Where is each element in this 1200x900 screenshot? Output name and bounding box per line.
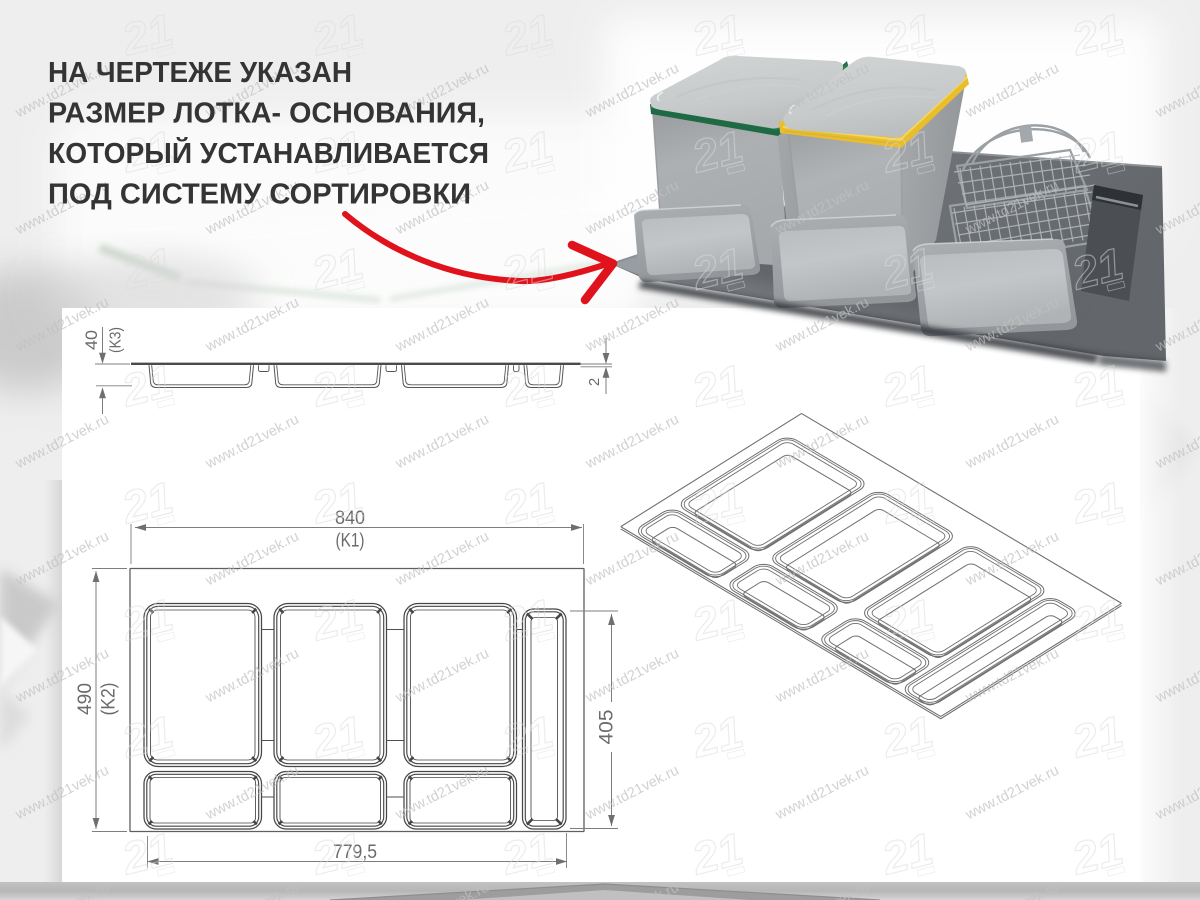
svg-text:РАЗМЕР ЛОТКА- ОСНОВАНИЯ,: РАЗМЕР ЛОТКА- ОСНОВАНИЯ, [48, 98, 485, 130]
svg-text:КОТОРЫЙ УСТАНАВЛИВАЕТСЯ: КОТОРЫЙ УСТАНАВЛИВАЕТСЯ [48, 136, 489, 170]
svg-text:НА ЧЕРТЕЖЕ УКАЗАН: НА ЧЕРТЕЖЕ УКАЗАН [48, 57, 352, 89]
svg-text:ПОД СИСТЕМУ СОРТИРОВКИ: ПОД СИСТЕМУ СОРТИРОВКИ [48, 179, 471, 211]
